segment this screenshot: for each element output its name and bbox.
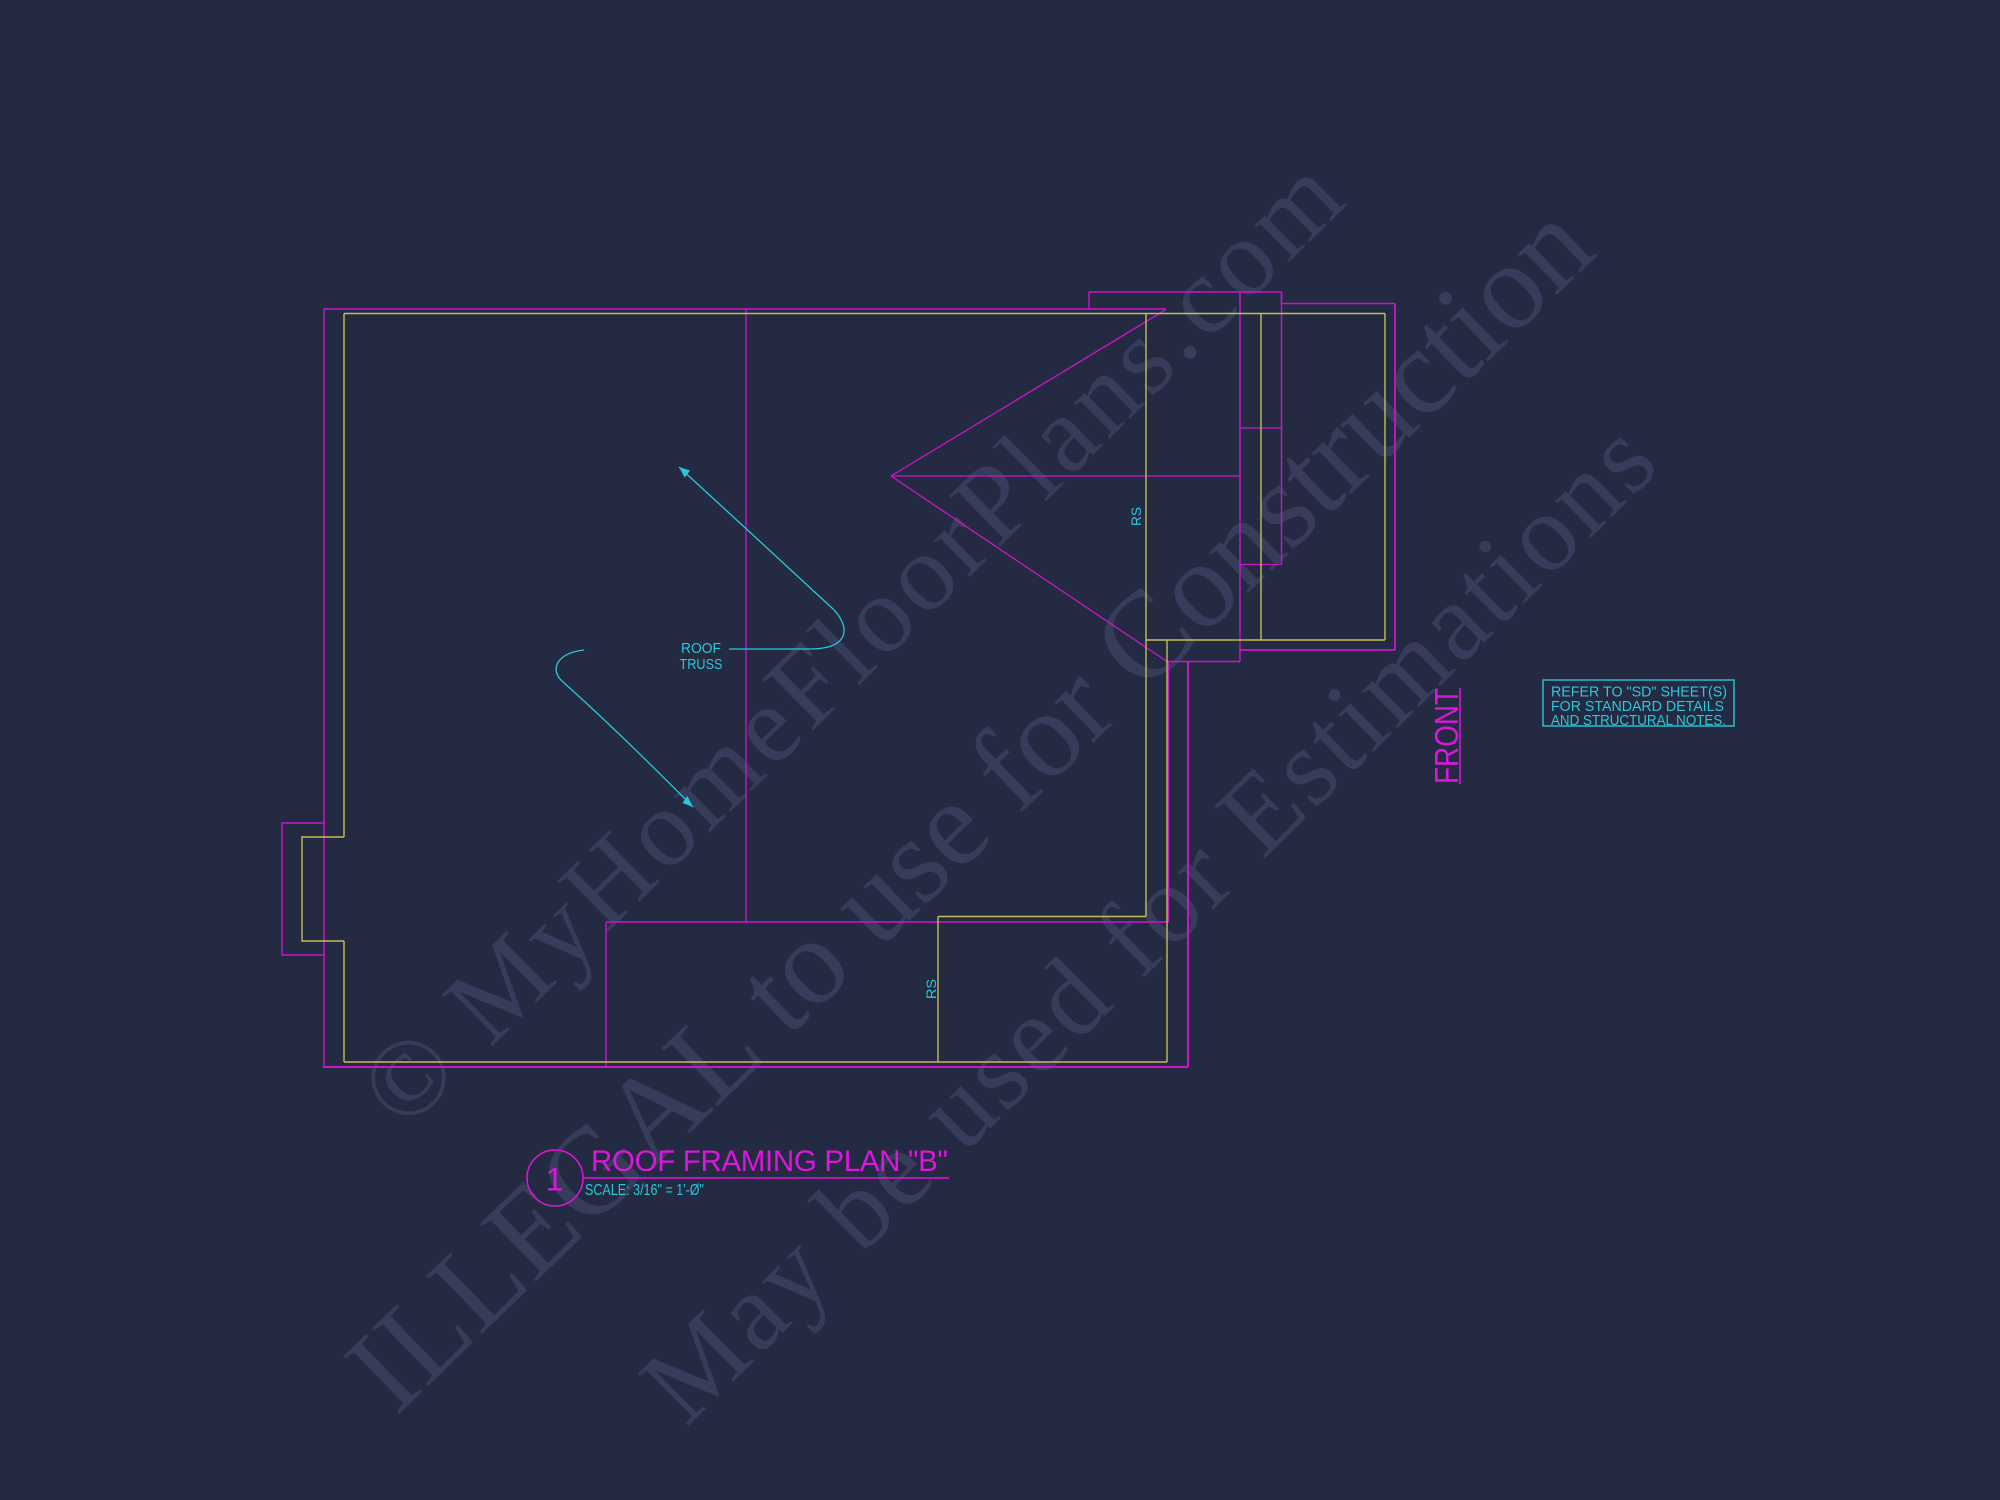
svg-text:TRUSS: TRUSS (680, 657, 723, 673)
svg-text:1: 1 (546, 1162, 564, 1198)
svg-text:ROOF: ROOF (681, 641, 721, 657)
svg-text:RS: RS (1129, 507, 1144, 526)
svg-text:RS: RS (924, 979, 939, 999)
svg-text:ROOF FRAMING PLAN "B": ROOF FRAMING PLAN "B" (591, 1145, 948, 1178)
svg-text:ILLEGAL to use for Constructio: ILLEGAL to use for Construction (320, 175, 1618, 1436)
svg-text:SCALE: 3/16" = 1'-Ø": SCALE: 3/16" = 1'-Ø" (585, 1182, 704, 1199)
svg-text:AND STRUCTURAL NOTES.: AND STRUCTURAL NOTES. (1551, 712, 1726, 729)
